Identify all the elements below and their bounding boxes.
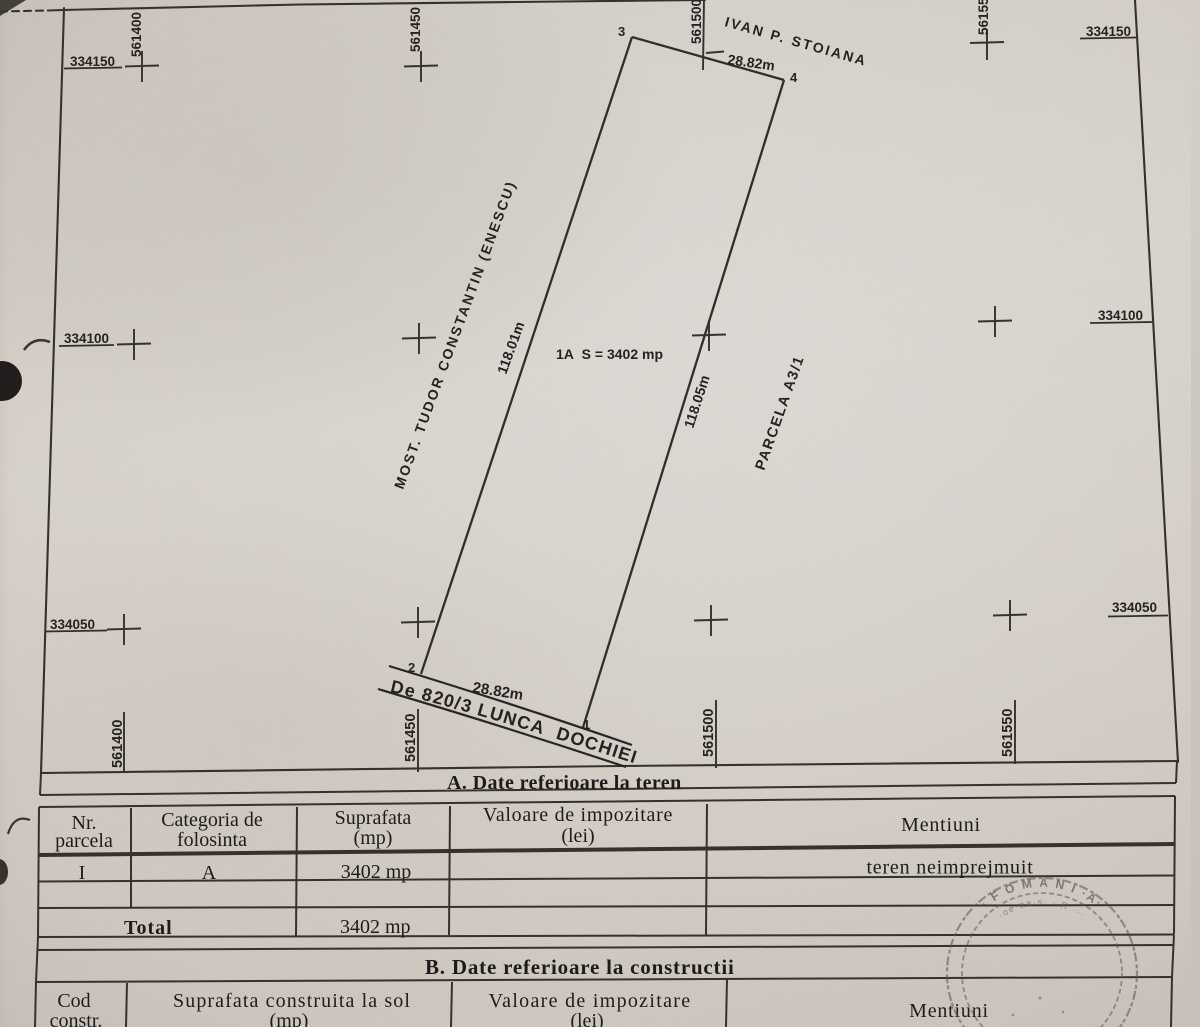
svg-text:4: 4 <box>790 70 798 85</box>
svg-text:561550: 561550 <box>976 0 991 35</box>
svg-text:B. Date referioare la construc: B. Date referioare la constructii <box>425 955 735 979</box>
svg-text:Mentiuni: Mentiuni <box>901 814 981 836</box>
svg-text:334150: 334150 <box>1086 24 1131 39</box>
svg-text:Valoare de impozitare: Valoare de impozitare <box>483 804 673 826</box>
svg-text:561450: 561450 <box>408 7 423 52</box>
svg-text:334050: 334050 <box>50 617 95 632</box>
svg-text:(mp): (mp) <box>270 1010 309 1027</box>
svg-text:334100: 334100 <box>1098 308 1143 323</box>
svg-text:A: A <box>202 862 217 884</box>
svg-text:561550: 561550 <box>1000 709 1016 757</box>
svg-text:constr.: constr. <box>50 1010 103 1027</box>
svg-text:(lei): (lei) <box>561 825 594 847</box>
svg-text:Cod: Cod <box>57 990 90 1012</box>
svg-text:Categoria de: Categoria de <box>161 809 263 831</box>
svg-text:334150: 334150 <box>70 54 115 69</box>
svg-text:(lei): (lei) <box>570 1010 603 1027</box>
svg-text:3402 mp: 3402 mp <box>340 916 411 938</box>
svg-text:561400: 561400 <box>110 720 126 768</box>
svg-text:3402 mp: 3402 mp <box>341 861 412 883</box>
svg-text:561500: 561500 <box>701 709 717 757</box>
svg-text:561400: 561400 <box>129 12 144 57</box>
svg-text:561500: 561500 <box>689 0 704 44</box>
svg-text:Valoare de impozitare: Valoare de impozitare <box>489 990 692 1012</box>
svg-text:1: 1 <box>583 717 590 732</box>
svg-text:I: I <box>79 862 86 884</box>
svg-text:folosinta: folosinta <box>177 829 247 851</box>
svg-text:Suprafata construita la sol: Suprafata construita la sol <box>173 990 411 1012</box>
svg-text:3: 3 <box>618 24 625 39</box>
svg-text:Total: Total <box>124 917 173 939</box>
svg-text:A. Date referioare la teren: A. Date referioare la teren <box>447 772 682 794</box>
svg-text:334100: 334100 <box>64 331 109 346</box>
svg-text:561450: 561450 <box>403 714 419 762</box>
svg-text:Suprafata: Suprafata <box>335 807 412 829</box>
svg-text:334050: 334050 <box>1112 600 1157 615</box>
svg-text:parcela: parcela <box>55 830 113 852</box>
svg-text:2: 2 <box>408 660 415 675</box>
svg-text:teren neimprejmuit: teren neimprejmuit <box>866 857 1033 879</box>
svg-text:1A S = 3402 mp: 1A S = 3402 mp <box>556 346 663 362</box>
svg-text:(mp): (mp) <box>354 827 393 849</box>
